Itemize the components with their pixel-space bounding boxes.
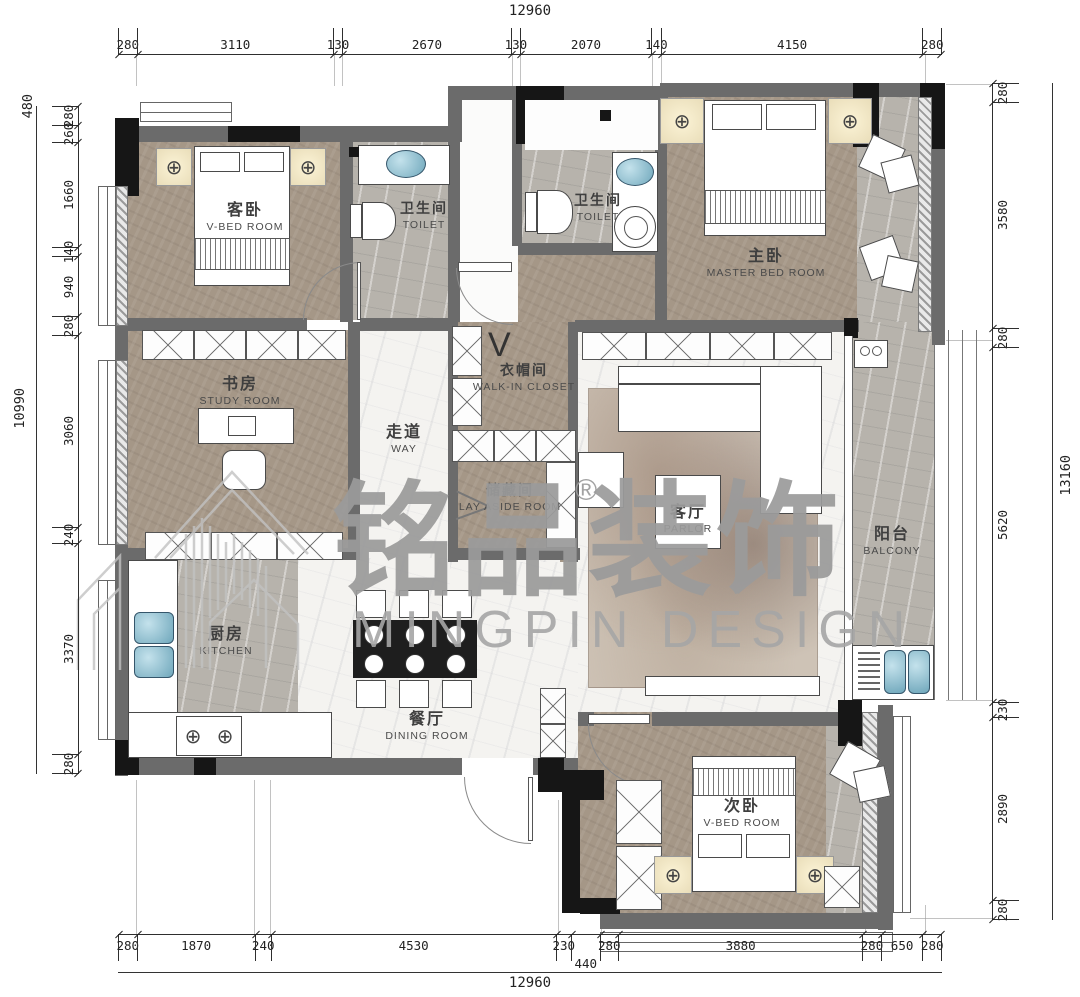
balcony-window (934, 330, 978, 700)
dim-chain-right: 280358028056202302890280 (992, 83, 1019, 920)
cabinet (824, 866, 860, 908)
pillow (698, 834, 742, 858)
nightstand: ⊕ (290, 148, 326, 186)
toilet (362, 202, 396, 240)
cabinet (774, 332, 832, 360)
ceiling-lamp-icon: ⊕ (674, 111, 691, 131)
tv-console (645, 676, 820, 696)
dining-chair (399, 680, 429, 708)
watermark-english: MINGPIN DESIGN (352, 600, 914, 660)
cabinet (298, 330, 346, 360)
dim-chain-top: 2803110130267013020701404150280 (118, 28, 942, 55)
nightstand: ⊕ (660, 98, 704, 144)
cabinet (646, 332, 710, 360)
toilet-tank (525, 192, 537, 232)
dining-chair (442, 680, 472, 708)
entry-door-arc (464, 777, 531, 844)
ceiling-lamp-icon: ⊕ (842, 111, 859, 131)
window-hatch (918, 97, 932, 332)
pillow (200, 152, 240, 172)
wardrobe-cabinet (536, 430, 576, 462)
ceiling-lamp-icon: ⊕ (166, 157, 183, 177)
toilet2-counter-area (525, 100, 658, 150)
window-hatch (862, 712, 878, 913)
sink-basin (386, 150, 426, 178)
ceiling-lamp-icon: ⊕ (807, 865, 824, 885)
wardrobe-cabinet (616, 780, 662, 844)
pillow (766, 104, 816, 130)
mingpin-logo-icon (60, 430, 340, 675)
door-leaf (357, 262, 361, 320)
dim-top-total: 12960 (118, 3, 942, 19)
pillow (712, 104, 762, 130)
window-hatch (116, 186, 128, 326)
floor-hallway (518, 245, 662, 322)
cabinet (540, 724, 566, 758)
toilet-tank (350, 204, 362, 238)
room-label-closet: 衣帽间WALK-IN CLOSET (473, 360, 575, 393)
cabinet (246, 330, 298, 360)
window-sill (140, 102, 232, 122)
lounge-chair (853, 765, 891, 803)
room-label-study: 书房STUDY ROOM (200, 370, 281, 407)
window (893, 716, 911, 913)
room-label-toilet1: 卫生间TOILET (400, 198, 448, 231)
cabinet (710, 332, 774, 360)
cabinet (582, 332, 646, 360)
lounge-chair (881, 255, 919, 293)
nightstand: ⊕ (828, 98, 872, 144)
dim-chain-left: 280260166014094028030602403370280 (52, 106, 79, 774)
burner-icon: ⊕ (185, 726, 202, 746)
drain-icon (349, 147, 359, 157)
dim-left-total-line (36, 106, 37, 774)
pillow (244, 152, 284, 172)
room-label-dining: 餐厅DINING ROOM (385, 705, 468, 742)
heater-knob-icon (872, 346, 882, 356)
dim-right-total-line (1052, 83, 1053, 920)
room-label-toilet2: 卫生间TOILET (574, 190, 622, 223)
room-label-second-bedroom: 次卧V-BED ROOM (703, 792, 780, 829)
dim-right-total: 13160 (1058, 455, 1074, 496)
cabinet (540, 688, 566, 724)
room-label-balcony: 阳台BALCONY (863, 520, 920, 557)
window (98, 186, 116, 326)
heater-knob-icon (860, 346, 870, 356)
burner-icon: ⊕ (217, 726, 234, 746)
bed-blanket (194, 238, 290, 270)
room-label-master-bedroom: 主卧MASTER BED ROOM (707, 242, 826, 279)
toilet (537, 190, 573, 234)
sink-basin (616, 158, 654, 186)
cabinet (142, 330, 194, 360)
wardrobe-cabinet (494, 430, 536, 462)
ceiling-lamp-icon: ⊕ (665, 865, 682, 885)
dim-left-outer-480: 480 (20, 94, 36, 118)
room-label-way: 走道WAY (386, 418, 422, 455)
drain-icon (600, 110, 611, 121)
cabinet (194, 330, 246, 360)
ceiling-lamp-icon: ⊕ (300, 157, 317, 177)
nightstand: ⊕ (156, 148, 192, 186)
pillow (746, 834, 790, 858)
gas-stove: ⊕⊕ (176, 716, 242, 756)
sofa-seat (618, 384, 764, 432)
wardrobe-cabinet (452, 430, 494, 462)
dim-chain-bottom: 280187024045302304402803880280650280 (118, 934, 942, 961)
registered-trademark-icon: ® (575, 474, 597, 508)
door-leaf (588, 714, 650, 724)
room-label-guest-bedroom: 客卧V-BED ROOM (206, 196, 283, 233)
nightstand: ⊕ (654, 856, 692, 894)
water-heater (854, 340, 888, 368)
dining-chair (356, 680, 386, 708)
dim-bottom-total: 12960 (118, 975, 942, 991)
dim-bottom-total-line (118, 972, 942, 973)
floor-plan-canvas: 12960 2803110130267013020701404150280 28… (0, 0, 1080, 997)
dim-left-total: 10990 (12, 388, 28, 429)
bed-blanket (704, 190, 826, 224)
